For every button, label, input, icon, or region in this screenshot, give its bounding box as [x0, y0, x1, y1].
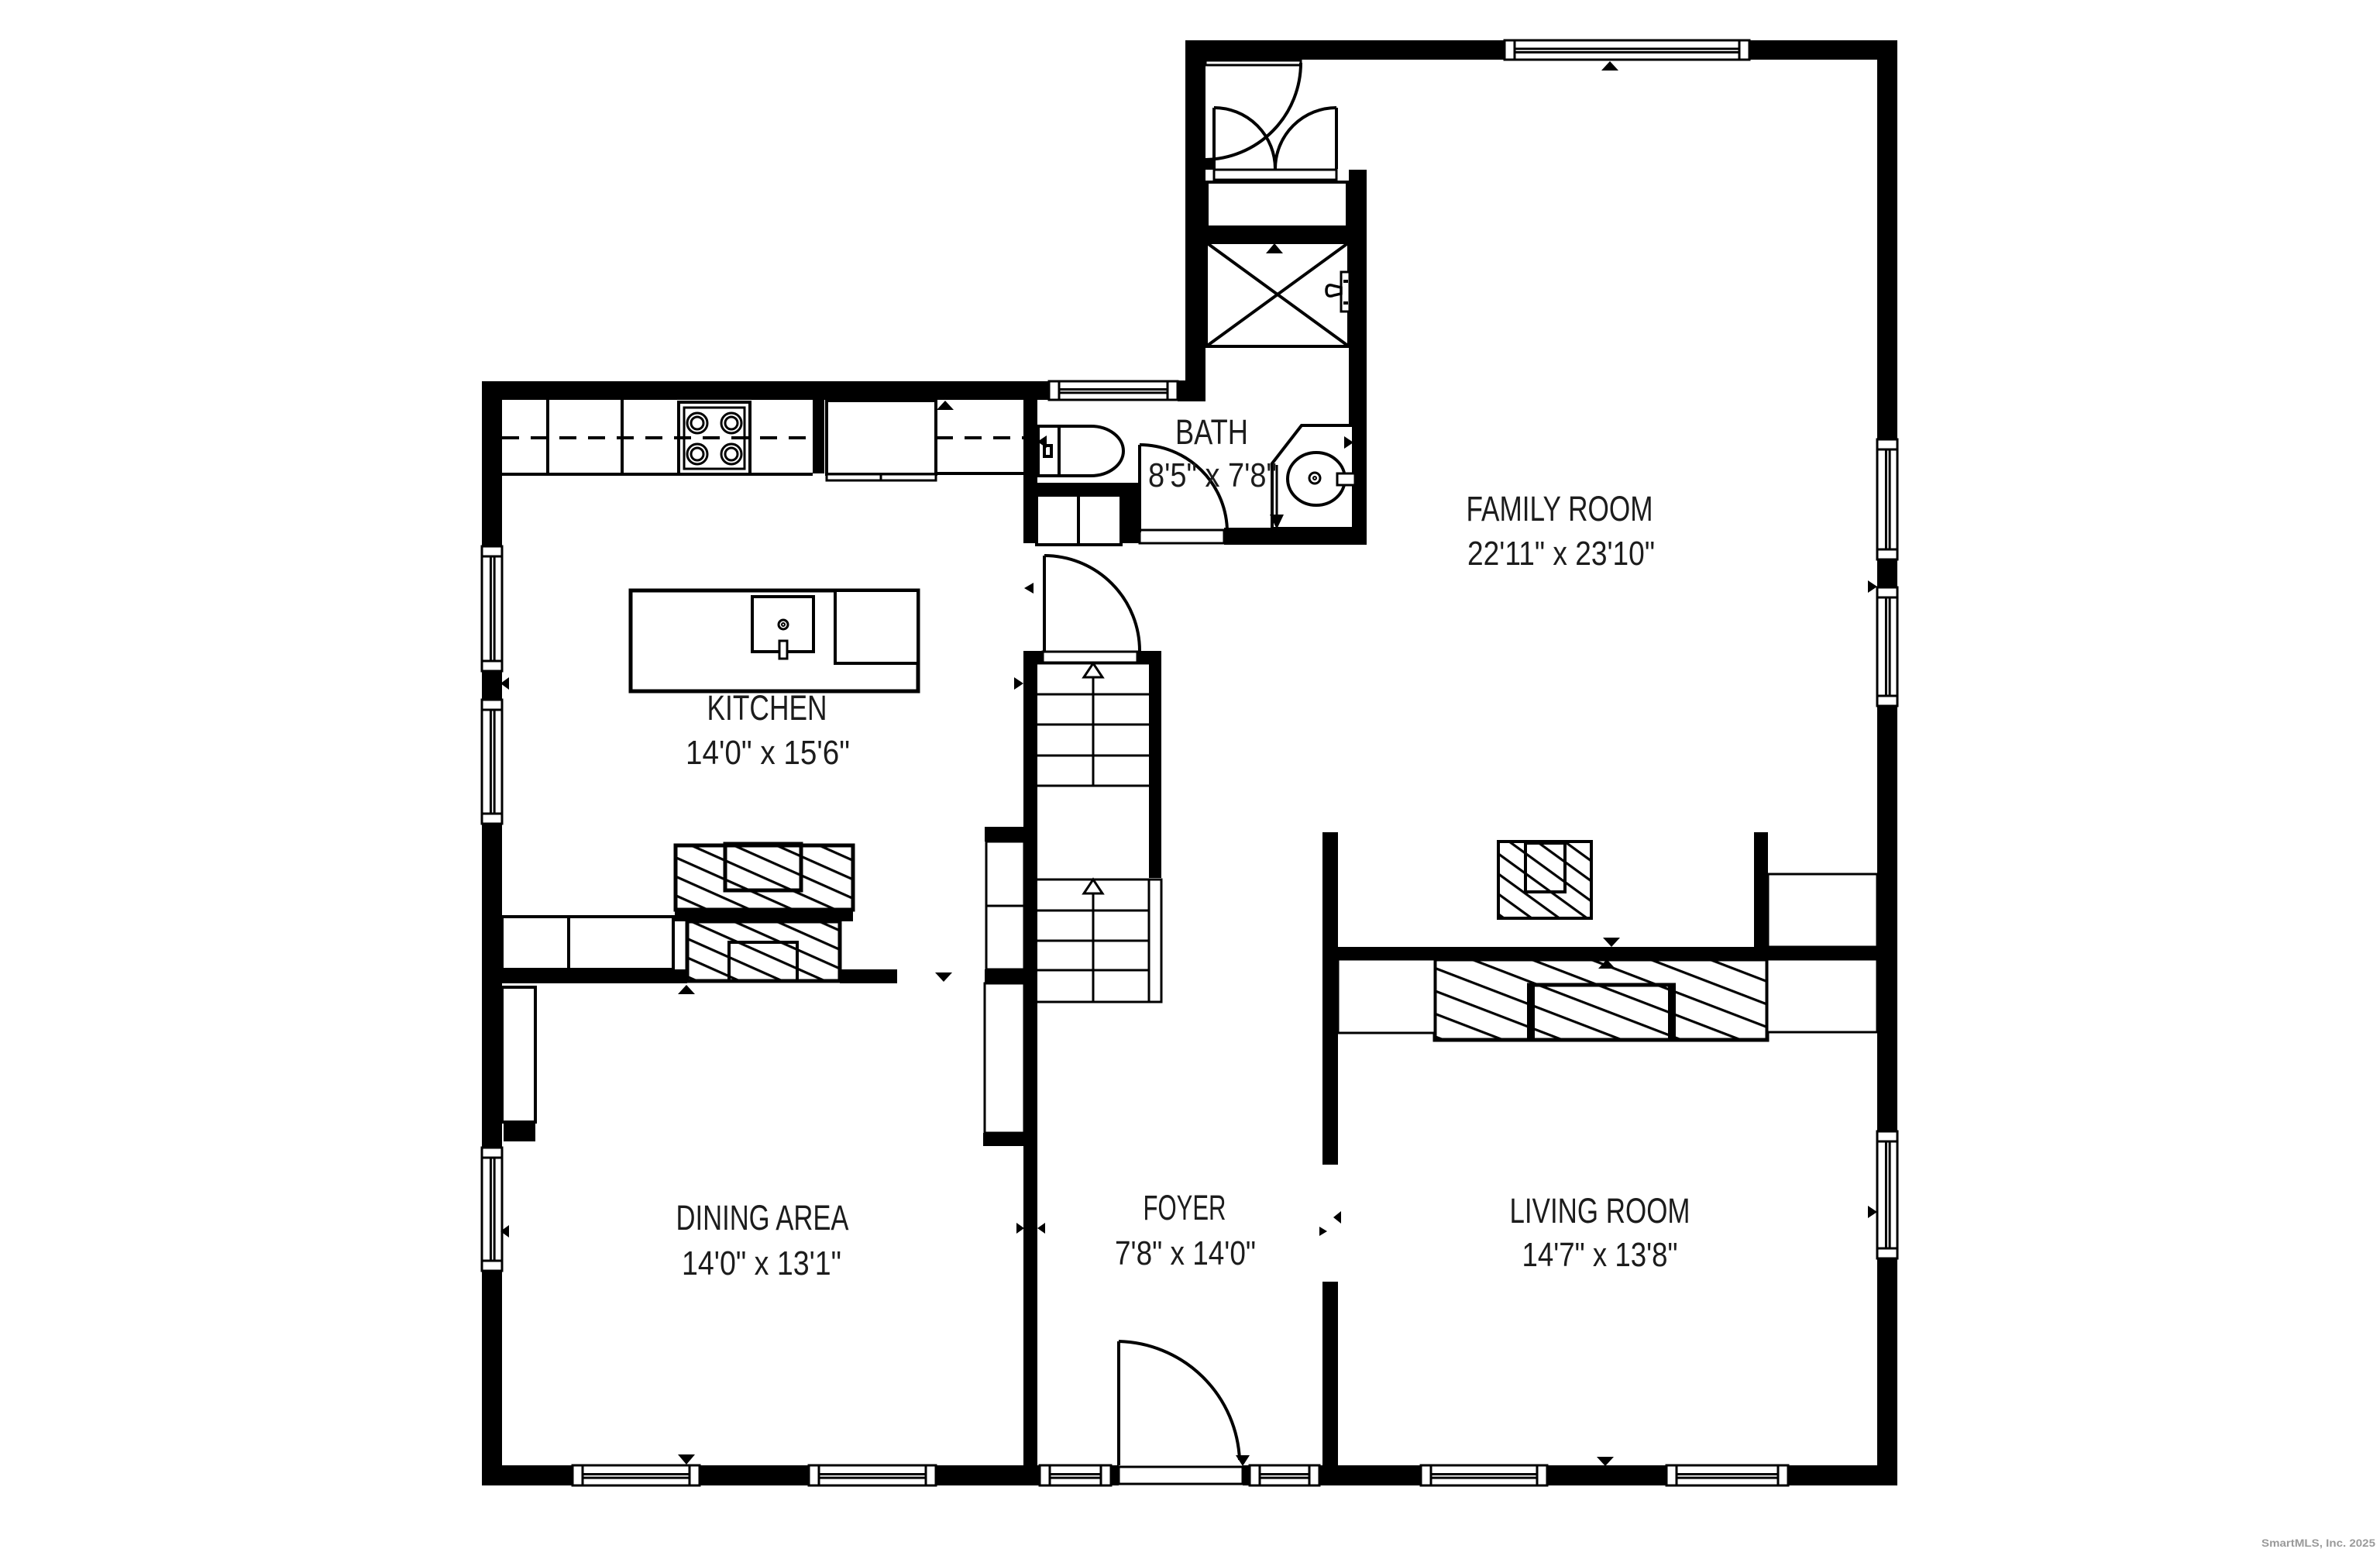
svg-text:14'0" x 15'6": 14'0" x 15'6" [686, 734, 850, 772]
svg-text:7'8" x 14'0": 7'8" x 14'0" [1115, 1234, 1256, 1272]
svg-text:LIVING ROOM: LIVING ROOM [1510, 1191, 1690, 1231]
svg-text:FOYER: FOYER [1144, 1188, 1226, 1227]
svg-text:BATH: BATH [1175, 412, 1248, 452]
svg-text:KITCHEN: KITCHEN [707, 688, 827, 728]
svg-text:FAMILY ROOM: FAMILY ROOM [1467, 489, 1653, 528]
svg-text:SmartMLS, Inc. 2025: SmartMLS, Inc. 2025 [2261, 1537, 2375, 1549]
svg-text:22'11" x 23'10": 22'11" x 23'10" [1467, 535, 1655, 573]
svg-text:14'7" x 13'8": 14'7" x 13'8" [1522, 1236, 1678, 1274]
svg-text:DINING AREA: DINING AREA [676, 1198, 849, 1237]
svg-text:14'0" x 13'1": 14'0" x 13'1" [682, 1244, 841, 1282]
svg-text:8'5" x 7'8": 8'5" x 7'8" [1148, 456, 1277, 494]
